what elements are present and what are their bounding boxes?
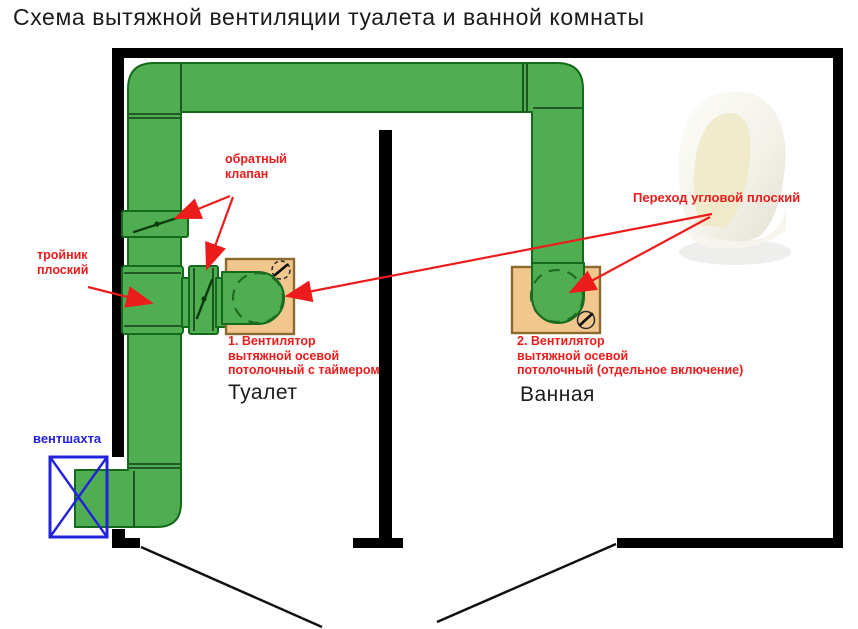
fan2-label: 2. Вентилятор вытяжной осевой потолочный… — [517, 334, 807, 378]
check-valve-2 — [189, 266, 218, 334]
arrow-transition-to-toilet-fan — [287, 214, 712, 296]
corner-transition-photo — [678, 91, 791, 265]
tee-fitting — [122, 266, 183, 334]
bathroom-fan — [512, 263, 600, 333]
corner-transition-label: Переход угловой плоский — [633, 191, 800, 206]
wall-top — [112, 48, 843, 58]
vent-shaft-label: вентшахта — [33, 431, 101, 446]
check-valve-1 — [122, 211, 188, 237]
tee-label: тройник плоский — [37, 248, 88, 277]
arrow-check-valve-2 — [207, 197, 233, 268]
arrow-check-valve-1 — [176, 196, 230, 218]
room-label-bathroom: Ванная — [520, 383, 595, 408]
room-label-toilet: Туалет — [228, 381, 297, 406]
wall-partition-foot — [353, 538, 403, 548]
door-swing-left — [141, 547, 322, 627]
duct-network — [75, 63, 583, 527]
wall-bottom-right — [617, 538, 843, 548]
wall-right — [833, 48, 843, 548]
page-title: Схема вытяжной вентиляции туалета и ванн… — [13, 4, 645, 31]
wall-left — [112, 56, 124, 457]
toilet-fan — [222, 259, 294, 334]
diagram-canvas — [0, 0, 858, 629]
ventilation-diagram: Схема вытяжной вентиляции туалета и ванн… — [0, 0, 858, 629]
door-swing-right — [437, 544, 616, 622]
fan1-label: 1. Вентилятор вытяжной осевой потолочный… — [228, 334, 408, 378]
check-valve-label: обратный клапан — [225, 152, 287, 181]
wall-left-foot — [112, 538, 140, 548]
